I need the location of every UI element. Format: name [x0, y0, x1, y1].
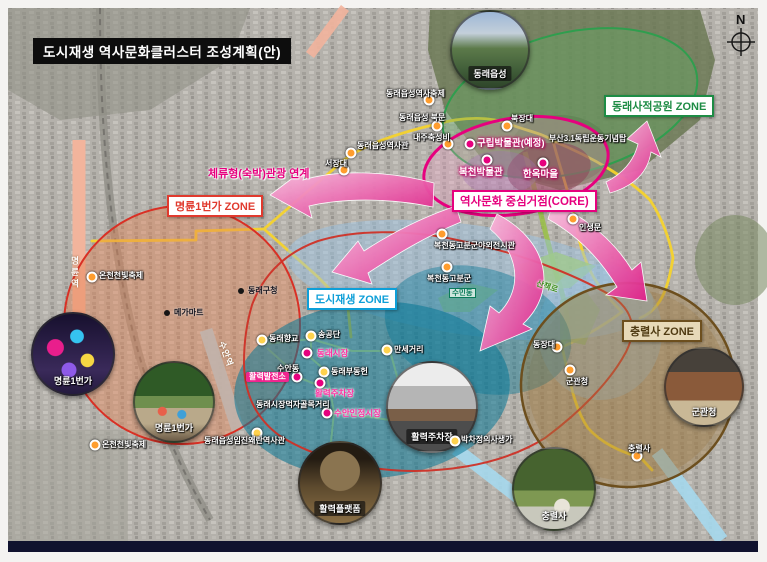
poi-label: 송공단: [318, 331, 340, 339]
poi-label: 동래시장: [317, 349, 348, 358]
zone-label-dongnae-park: 동래사적공원 ZONE: [604, 95, 714, 117]
zone-label-chungnyeolsa: 충렬사 ZONE: [622, 320, 702, 342]
photo-caption: 활력플랫폼: [314, 501, 365, 516]
poi-label: 온천천빛축제: [99, 272, 143, 280]
poi-dot: [538, 158, 549, 169]
poi-label: 동래읍성임진왜란역사관: [204, 437, 285, 445]
poi-label: 수안인정시장: [334, 409, 381, 418]
photo-caption: 명륜1번가: [155, 421, 193, 434]
photo-inset-gwan: 군관청: [664, 347, 744, 427]
compass-north-label: N: [736, 12, 745, 27]
poi-label: 복천동고분군야외전시관: [434, 242, 515, 250]
poi-label: 동래읍성역사축제: [386, 90, 445, 98]
poi-dot: [292, 372, 303, 383]
photo-caption: 동래읍성: [468, 66, 511, 81]
urban-plan-map: 도시재생 역사문화클러스터 조성계획(안) 동래사적공원 ZONE 명륜1번가 …: [0, 0, 767, 562]
photo-caption: 군관청: [692, 405, 717, 418]
zone-label-regen: 도시재생 ZONE: [307, 288, 397, 310]
poi-label: 복천박물관: [459, 168, 503, 178]
photo-inset-street: 명륜1번가: [133, 361, 215, 443]
bottom-bar: [8, 541, 758, 552]
poi-dot: [432, 121, 443, 132]
poi-label: 동래향교: [269, 335, 298, 343]
photo-caption: 명륜1번가: [54, 374, 92, 387]
poi-dot: [465, 139, 476, 150]
poi-label: 북장대: [511, 115, 533, 123]
poi-dot: [319, 367, 330, 378]
poi-dot: [302, 348, 313, 359]
page-title: 도시재생 역사문화클러스터 조성계획(안): [33, 38, 291, 64]
poi-dot: [437, 229, 448, 240]
zone-label-core: 역사문화 중심거점(CORE): [452, 190, 597, 212]
poi-label: 구립박물관(예정): [477, 139, 545, 149]
photo-caption: 충렬사: [542, 509, 567, 522]
poi-dot: [238, 288, 244, 294]
poi-dot: [90, 440, 101, 451]
zone-label-myeongnyun: 명륜1번가 ZONE: [167, 195, 263, 217]
photo-inset-eupseong: 동래읍성: [450, 10, 530, 90]
poi-label: 동래부동헌: [331, 368, 368, 376]
poi-label: 메가마트: [174, 309, 203, 317]
poi-dot: [565, 365, 576, 376]
poi-label: 인생문: [579, 224, 601, 232]
poi-dot: [346, 148, 357, 159]
poi-dot: [257, 335, 268, 346]
map-base-layer: [0, 0, 767, 562]
poi-dot: [450, 436, 461, 447]
poi-label: 동래읍성역사관: [357, 142, 409, 150]
poi-dot: [306, 331, 317, 342]
poi-label: 활력발전소: [246, 372, 289, 382]
poi-dot: [482, 155, 493, 166]
poi-label: 동래구청: [248, 287, 277, 295]
poi-label: 부산3.1독립운동기념탑: [549, 135, 626, 143]
core-link-label: 체류형(숙박)관광 연계: [208, 165, 309, 181]
poi-label: 동래시장먹자골목거리: [256, 401, 330, 409]
poi-label: 내주축성비: [413, 134, 450, 142]
transit-station-label: 명륜역: [69, 256, 81, 291]
poi-dot: [442, 262, 453, 273]
poi-label: 동래읍성 북문: [399, 114, 445, 122]
poi-label: 충렬사: [628, 445, 650, 453]
poi-dot: [315, 378, 326, 389]
photo-inset-night: 명륜1번가: [31, 312, 115, 396]
photo-inset-platform: 활력플랫폼: [298, 441, 382, 525]
poi-label: 군관청: [566, 378, 588, 386]
poi-dot: [87, 272, 98, 283]
poi-label: 복천동고분군: [427, 275, 471, 283]
poi-label: 한옥마을: [523, 170, 558, 180]
poi-label: 만세거리: [394, 346, 423, 354]
poi-dot: [382, 345, 393, 356]
poi-label: 박차정의사생가: [461, 436, 513, 444]
poi-label: 동장대: [533, 341, 555, 349]
poi-dot: [164, 310, 170, 316]
photo-inset-chung: 충렬사: [512, 447, 596, 531]
poi-label: 서장대: [325, 160, 347, 168]
poi-dot: [322, 408, 333, 419]
poi-label: 온천천빛축제: [102, 441, 146, 449]
poi-label: 활력주차장: [315, 389, 354, 398]
poi-dot: [568, 214, 579, 225]
poi-label: 수민동: [449, 288, 476, 298]
